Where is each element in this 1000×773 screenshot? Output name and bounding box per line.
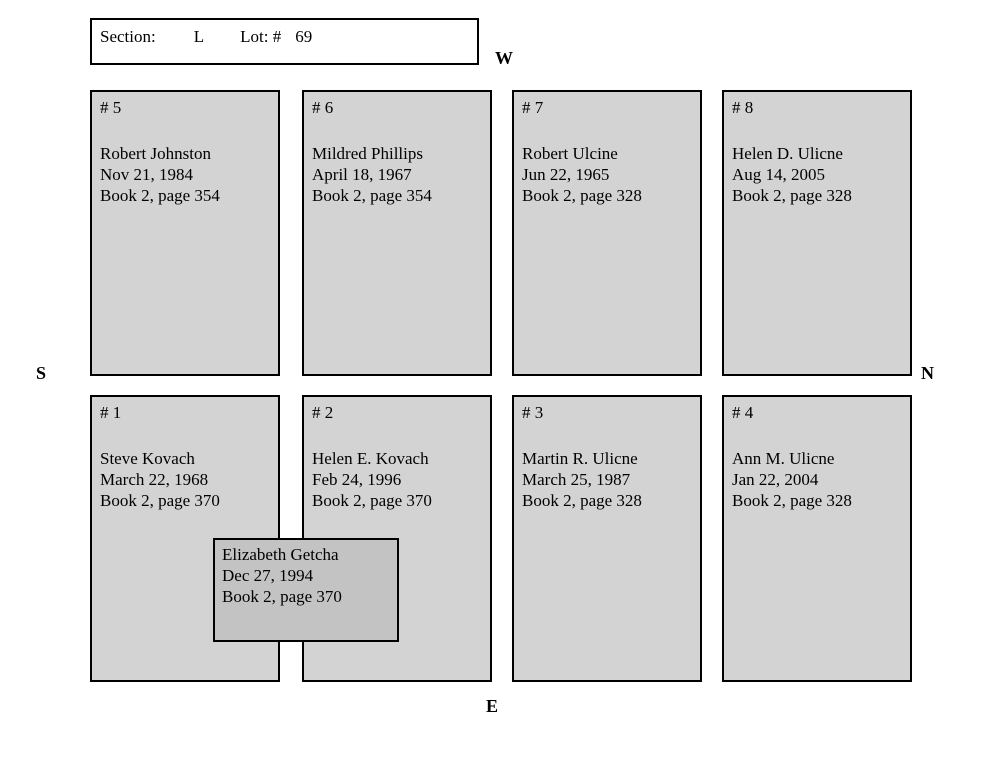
plot-number: # 3 xyxy=(522,402,692,423)
occupant-info: Helen D. Ulicne Aug 14, 2005 Book 2, pag… xyxy=(732,143,902,206)
occupant-date: Nov 21, 1984 xyxy=(100,164,270,185)
occupant-name: Robert Ulcine xyxy=(522,143,692,164)
occupant-book: Book 2, page 354 xyxy=(100,185,270,206)
overlay-interment-box: Elizabeth Getcha Dec 27, 1994 Book 2, pa… xyxy=(213,538,399,642)
compass-west: W xyxy=(495,48,513,69)
plot-number: # 5 xyxy=(100,97,270,118)
occupant-info: Mildred Phillips April 18, 1967 Book 2, … xyxy=(312,143,482,206)
occupant-info: Robert Ulcine Jun 22, 1965 Book 2, page … xyxy=(522,143,692,206)
occupant-info: Ann M. Ulicne Jan 22, 2004 Book 2, page … xyxy=(732,448,902,511)
occupant-name: Mildred Phillips xyxy=(312,143,482,164)
plot-7: # 7 Robert Ulcine Jun 22, 1965 Book 2, p… xyxy=(512,90,702,376)
plot-3: # 3 Martin R. Ulicne March 25, 1987 Book… xyxy=(512,395,702,682)
compass-north: N xyxy=(921,363,934,384)
occupant-book: Book 2, page 328 xyxy=(732,490,902,511)
plot-6: # 6 Mildred Phillips April 18, 1967 Book… xyxy=(302,90,492,376)
occupant-date: Jun 22, 1965 xyxy=(522,164,692,185)
plot-number: # 7 xyxy=(522,97,692,118)
plot-number: # 4 xyxy=(732,402,902,423)
plot-number: # 1 xyxy=(100,402,270,423)
section-label: Section: xyxy=(100,27,156,46)
occupant-book: Book 2, page 328 xyxy=(732,185,902,206)
occupant-date: Dec 27, 1994 xyxy=(222,565,390,586)
occupant-date: Aug 14, 2005 xyxy=(732,164,902,185)
occupant-name: Martin R. Ulicne xyxy=(522,448,692,469)
plot-5: # 5 Robert Johnston Nov 21, 1984 Book 2,… xyxy=(90,90,280,376)
occupant-name: Steve Kovach xyxy=(100,448,270,469)
compass-south: S xyxy=(36,363,46,384)
occupant-name: Elizabeth Getcha xyxy=(222,544,390,565)
occupant-info: Martin R. Ulicne March 25, 1987 Book 2, … xyxy=(522,448,692,511)
compass-east: E xyxy=(486,696,498,717)
plot-8: # 8 Helen D. Ulicne Aug 14, 2005 Book 2,… xyxy=(722,90,912,376)
occupant-name: Robert Johnston xyxy=(100,143,270,164)
occupant-date: Feb 24, 1996 xyxy=(312,469,482,490)
occupant-book: Book 2, page 354 xyxy=(312,185,482,206)
occupant-name: Ann M. Ulicne xyxy=(732,448,902,469)
occupant-date: April 18, 1967 xyxy=(312,164,482,185)
occupant-info: Helen E. Kovach Feb 24, 1996 Book 2, pag… xyxy=(312,448,482,511)
occupant-name: Helen E. Kovach xyxy=(312,448,482,469)
occupant-book: Book 2, page 370 xyxy=(222,586,390,607)
occupant-book: Book 2, page 328 xyxy=(522,185,692,206)
lot-label: Lot: # xyxy=(240,27,281,46)
section-lot-box: Section:LLot: #69 xyxy=(90,18,479,65)
plot-number: # 8 xyxy=(732,97,902,118)
occupant-date: March 25, 1987 xyxy=(522,469,692,490)
plot-number: # 2 xyxy=(312,402,482,423)
occupant-date: March 22, 1968 xyxy=(100,469,270,490)
lot-value: 69 xyxy=(295,27,312,46)
occupant-book: Book 2, page 370 xyxy=(312,490,482,511)
plot-4: # 4 Ann M. Ulicne Jan 22, 2004 Book 2, p… xyxy=(722,395,912,682)
occupant-info: Steve Kovach March 22, 1968 Book 2, page… xyxy=(100,448,270,511)
section-value: L xyxy=(194,27,204,46)
occupant-name: Helen D. Ulicne xyxy=(732,143,902,164)
occupant-book: Book 2, page 370 xyxy=(100,490,270,511)
occupant-info: Robert Johnston Nov 21, 1984 Book 2, pag… xyxy=(100,143,270,206)
plot-number: # 6 xyxy=(312,97,482,118)
occupant-date: Jan 22, 2004 xyxy=(732,469,902,490)
occupant-book: Book 2, page 328 xyxy=(522,490,692,511)
cemetery-lot-diagram: Section:LLot: #69 W S N E # 5 Robert Joh… xyxy=(0,0,1000,773)
